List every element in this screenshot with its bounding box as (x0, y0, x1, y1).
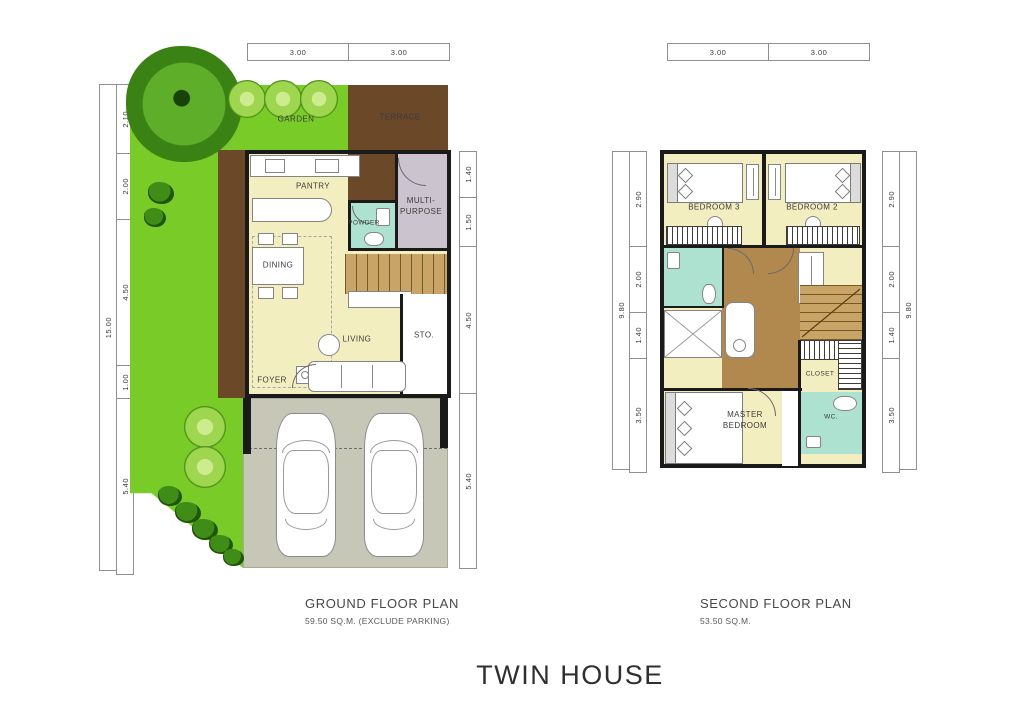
storage-label: STO. (414, 331, 434, 342)
tree-icon (184, 406, 226, 448)
car-cabin (371, 450, 417, 514)
pantry-label: PANTRY (296, 182, 330, 193)
floor-plan-sheet: 3.00 3.00 15.00 2.10 2.00 4.50 1.00 5.40… (0, 0, 1024, 724)
garage-wall-stub (440, 398, 448, 448)
closet-label: CLOSET (806, 371, 834, 380)
gf-right-dimension-strip: 1.40 1.50 4.50 5.40 (460, 152, 477, 569)
bed-headboard (666, 393, 676, 463)
car-icon (276, 413, 336, 557)
pillow-icon (677, 441, 693, 457)
dimension-cell: 15.00 (99, 84, 117, 571)
sofa-cushion-line (341, 365, 342, 388)
shower-area (664, 310, 722, 358)
dimension-cell: 2.90 (629, 151, 647, 247)
stove-icon (315, 159, 339, 173)
pillow-icon (677, 421, 693, 437)
bedroom3-label: BEDROOM 3 (688, 203, 740, 214)
bush-icon (148, 182, 174, 204)
kitchen-counter (250, 155, 360, 177)
closet-door-line (753, 168, 754, 196)
dimension-cell: 3.00 (247, 43, 349, 61)
gf-top-dimension-strip: 3.00 3.00 (248, 44, 450, 61)
dining-label: DINING (263, 261, 293, 272)
closet-wardrobe-top (798, 340, 840, 360)
bedroom2-closet (768, 164, 781, 200)
second-floor-title: SECOND FLOOR PLAN (700, 596, 852, 611)
wardrobe-bedroom2 (786, 226, 860, 245)
dimension-cell: 1.40 (629, 312, 647, 359)
dimension-cell: 5.40 (459, 393, 477, 569)
dimension-cell: 2.00 (882, 246, 900, 313)
dimension-cell: 1.40 (882, 312, 900, 359)
wardrobe-bedroom3 (666, 226, 742, 245)
dimension-cell: 3.00 (768, 43, 870, 61)
dimension-cell: 9.80 (612, 151, 630, 470)
large-tree-icon (126, 46, 242, 162)
dining-chair (258, 287, 274, 299)
multipurpose-label: MULTI- PURPOSE (400, 196, 442, 218)
kitchen-island (252, 198, 332, 222)
bed-bedroom2 (785, 163, 861, 203)
pillow-icon (677, 401, 693, 417)
sf-right-dimension-strip: 2.90 2.00 1.40 3.50 9.80 (883, 152, 917, 473)
car-cabin (283, 450, 329, 514)
ground-floor-title: GROUND FLOOR PLAN (305, 596, 459, 611)
sink-icon (667, 252, 680, 269)
second-floor-caption: SECOND FLOOR PLAN 53.50 SQ.M. (700, 596, 852, 626)
storage-room (400, 294, 447, 394)
sofa-cushion-line (372, 365, 373, 388)
sink-icon (806, 436, 821, 448)
foyer-label: FOYER (257, 376, 287, 387)
tree-icon (184, 446, 226, 488)
stair-diagonal (800, 285, 862, 340)
dimension-cell: 2.90 (882, 151, 900, 247)
bed-bedroom3 (667, 163, 743, 203)
bathtub-icon (725, 302, 755, 358)
side-walkway (218, 150, 248, 398)
pillow-icon (678, 184, 694, 200)
pillow-icon (835, 184, 851, 200)
sf-staircase (800, 285, 862, 340)
shower-tile-cross (665, 311, 721, 357)
bush-icon (223, 549, 244, 566)
pillow-icon (678, 168, 694, 184)
wc-room (801, 392, 862, 454)
dimension-cell: 3.50 (629, 358, 647, 473)
tree-icon (264, 80, 302, 118)
dimension-cell: 4.50 (459, 246, 477, 394)
toilet-icon (833, 396, 857, 411)
dimension-cell: 9.80 (899, 151, 917, 470)
coffee-table (318, 334, 340, 356)
pillow-icon (835, 168, 851, 184)
dimension-cell: 1.50 (459, 197, 477, 247)
toilet-icon (364, 232, 384, 246)
bush-icon (144, 208, 166, 227)
dimension-cell: 2.00 (629, 246, 647, 313)
car-icon (364, 413, 424, 557)
bathtub-drain (733, 339, 746, 352)
garden-side-strip (130, 152, 218, 398)
ground-floor-area: 59.50 SQ.M. (EXCLUDE PARKING) (305, 616, 459, 626)
closet-door-line (775, 168, 776, 196)
garage-wall-stub (243, 398, 251, 454)
gf-staircase (345, 254, 447, 294)
toilet-icon (702, 284, 716, 304)
bedroom2-label: BEDROOM 2 (786, 203, 838, 214)
dining-chair (258, 233, 274, 245)
car-rear-window (373, 519, 415, 530)
terrace-label: TERRACE (379, 113, 420, 124)
master-bedroom-label: MASTER BEDROOM (723, 410, 767, 432)
bathroom (664, 248, 724, 308)
sf-left-dimension-strip: 9.80 2.90 2.00 1.40 3.50 (613, 152, 647, 473)
master-window-bay (782, 391, 798, 466)
master-wall (662, 388, 802, 391)
dining-chair (282, 233, 298, 245)
ground-floor-caption: GROUND FLOOR PLAN 59.50 SQ.M. (EXCLUDE P… (305, 596, 459, 626)
bedroom-divider-wall (762, 152, 766, 247)
sofa (308, 361, 406, 392)
dimension-cell: 3.50 (882, 358, 900, 473)
mid-wall (662, 245, 864, 248)
gf-left-dimension-strip: 15.00 2.10 2.00 4.50 1.00 5.40 (100, 85, 134, 575)
car-rear-window (285, 519, 327, 530)
sink-icon (265, 159, 285, 173)
dimension-cell: 3.00 (348, 43, 450, 61)
tree-icon (228, 80, 266, 118)
sf-top-dimension-strip: 3.00 3.00 (668, 44, 870, 61)
bed-headboard (668, 164, 678, 202)
closet-wardrobe-side (838, 340, 862, 390)
living-label: LIVING (343, 335, 372, 346)
garden-label: GARDEN (278, 115, 315, 126)
bed-headboard (850, 164, 860, 202)
dining-chair (282, 287, 298, 299)
sheet-title: TWIN HOUSE (412, 660, 728, 691)
dimension-cell: 1.40 (459, 151, 477, 198)
wc-label: WC. (824, 414, 838, 423)
powder-label: POWDER (348, 220, 380, 229)
bedroom3-closet (746, 164, 759, 200)
tree-icon (300, 80, 338, 118)
dimension-cell: 3.00 (667, 43, 769, 61)
second-floor-area: 53.50 SQ.M. (700, 616, 852, 626)
